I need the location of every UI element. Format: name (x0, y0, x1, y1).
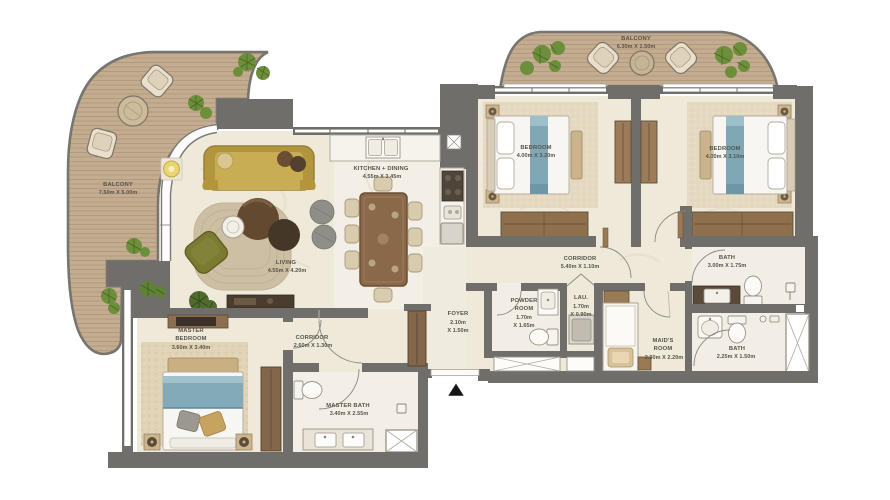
svg-text:1.70m: 1.70m (573, 304, 589, 310)
svg-text:3.40m X 2.55m: 3.40m X 2.55m (330, 411, 369, 417)
svg-text:BATH: BATH (719, 255, 735, 261)
svg-text:CORRIDOR: CORRIDOR (564, 256, 597, 262)
svg-text:X 1.65m: X 1.65m (513, 323, 534, 329)
svg-text:2.60m X 1.30m: 2.60m X 1.30m (294, 343, 333, 349)
svg-text:1.70m: 1.70m (516, 315, 532, 321)
svg-text:3.00m X 1.75m: 3.00m X 1.75m (708, 263, 747, 269)
svg-text:3.60m X 3.40m: 3.60m X 3.40m (172, 345, 211, 351)
svg-text:MASTER: MASTER (178, 328, 204, 334)
svg-text:6.30m X 1.50m: 6.30m X 1.50m (617, 44, 656, 50)
svg-text:2.10m: 2.10m (450, 320, 466, 326)
svg-text:ROOM: ROOM (654, 346, 673, 352)
svg-text:7.50m X 5.00m: 7.50m X 5.00m (99, 190, 138, 196)
svg-text:BEDROOM: BEDROOM (709, 146, 740, 152)
svg-text:KITCHEN + DINING: KITCHEN + DINING (353, 166, 408, 172)
svg-text:2.25m X 1.50m: 2.25m X 1.50m (717, 354, 756, 360)
svg-text:LAU.: LAU. (574, 295, 588, 301)
svg-text:5.40m X 1.10m: 5.40m X 1.10m (561, 264, 600, 270)
svg-text:ROOM: ROOM (515, 306, 534, 312)
svg-text:BATH: BATH (729, 346, 745, 352)
svg-text:X 0.90m: X 0.90m (570, 312, 591, 318)
svg-text:MASTER BATH: MASTER BATH (326, 403, 369, 409)
svg-text:BEDROOM: BEDROOM (175, 336, 206, 342)
svg-text:2.30m X 2.20m: 2.30m X 2.20m (645, 355, 684, 361)
svg-text:BEDROOM: BEDROOM (520, 145, 551, 151)
svg-text:POWDER: POWDER (511, 298, 539, 304)
svg-text:MAID'S: MAID'S (653, 338, 674, 344)
svg-text:4.00m X 3.20m: 4.00m X 3.20m (517, 153, 556, 159)
svg-text:X 1.50m: X 1.50m (447, 328, 468, 334)
svg-text:4.00m X 3.10m: 4.00m X 3.10m (706, 154, 745, 160)
svg-text:BALCONY: BALCONY (103, 182, 133, 188)
svg-text:4.55m X 4.20m: 4.55m X 4.20m (268, 268, 307, 274)
svg-text:FOYER: FOYER (448, 311, 469, 317)
svg-text:BALCONY: BALCONY (621, 36, 651, 42)
svg-text:4.55m X 3.45m: 4.55m X 3.45m (363, 174, 402, 180)
svg-text:CORRIDOR: CORRIDOR (296, 335, 329, 341)
svg-text:LIVING: LIVING (276, 260, 297, 266)
